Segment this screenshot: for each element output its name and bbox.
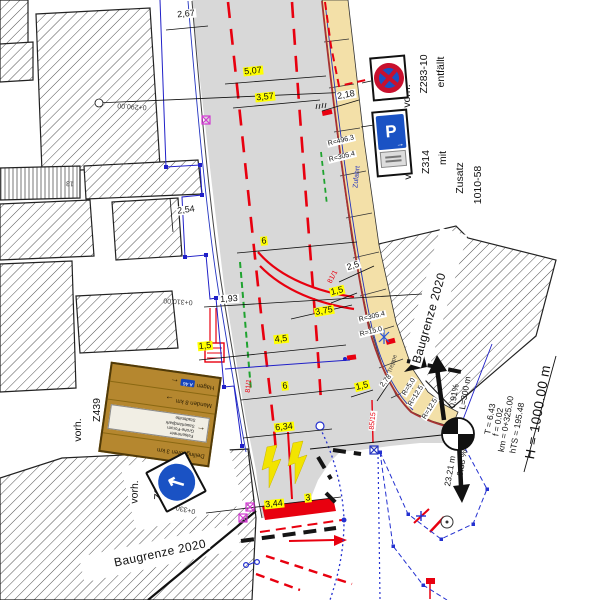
dim-label: 6 — [260, 236, 268, 246]
plan-linework — [0, 0, 602, 600]
arrow-right-icon: → — [164, 393, 174, 404]
dim-label: 3 — [304, 493, 312, 503]
house-number: 13 — [66, 179, 74, 187]
arrow-left-icon: ← — [196, 424, 206, 435]
z314-label: Z314 — [421, 150, 432, 174]
z283-label: entfällt — [436, 57, 447, 88]
arrow-left-icon: ← — [169, 376, 179, 387]
parking-arrow-icon: → — [396, 139, 405, 149]
direction-sign-box: Deilinghofen 3 km ← Felsenmeer Grohe-For… — [98, 362, 222, 468]
vertical-curve-point-icon — [442, 418, 474, 450]
z314-label: mit — [438, 151, 449, 165]
motorway-badge: A 46 — [181, 379, 196, 387]
parking-sign: P → — [371, 109, 413, 178]
parcel-label: 81/1 — [245, 379, 253, 393]
arrow-up-left-icon: ↖ — [162, 467, 189, 497]
parking-sign-icon: P → — [376, 114, 407, 150]
z439-label: vorh. — [73, 418, 84, 441]
dim-label: 4,5 — [273, 334, 288, 344]
z314-label: 1010-58 — [473, 166, 484, 205]
destination-label: Menden 8 km — [175, 397, 212, 408]
z439-label: Z439 — [92, 398, 103, 422]
site-plan: 2,67 5,07 3,57 2,18 2,54 6 1,93 2,5 1,5 … — [0, 0, 602, 600]
dim-label: 6 — [281, 381, 289, 391]
no-stopping-sign-icon — [373, 62, 406, 95]
destination-lines: Felsenmeer Grohe-Forum Sauerlandpark Sta… — [111, 406, 196, 439]
dim-label: 1,5 — [197, 341, 212, 351]
z314-label: Zusatz — [455, 162, 466, 194]
z222-label: vorh. — [129, 480, 140, 504]
z283-label: Z283-10 — [419, 54, 430, 93]
destination-label: Hagen — [196, 381, 214, 389]
dim-label: 1,93 — [219, 294, 239, 304]
supplementary-plate — [380, 150, 407, 168]
no-stopping-sign — [369, 55, 409, 102]
